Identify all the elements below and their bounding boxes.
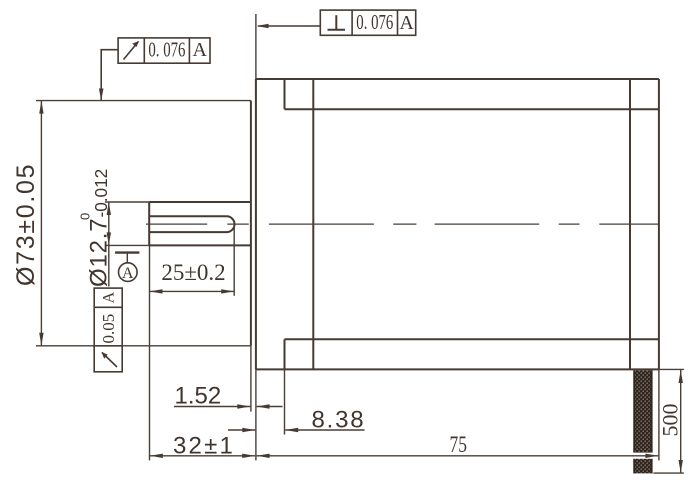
svg-text:Ø73±0.05: Ø73±0.05 xyxy=(12,163,40,286)
svg-text:1.52: 1.52 xyxy=(175,383,222,410)
svg-text:A: A xyxy=(122,265,134,282)
svg-text:A: A xyxy=(399,12,414,34)
svg-text:-0.012: -0.012 xyxy=(91,169,111,218)
svg-text:0. 076: 0. 076 xyxy=(148,38,185,62)
svg-text:A: A xyxy=(192,39,207,61)
svg-text:A: A xyxy=(101,291,118,303)
svg-text:500: 500 xyxy=(658,404,683,437)
svg-text:32±1: 32±1 xyxy=(173,433,235,460)
svg-text:0. 076: 0. 076 xyxy=(356,10,393,34)
svg-text:25±0.2: 25±0.2 xyxy=(161,260,225,285)
svg-text:0.05: 0.05 xyxy=(99,314,118,344)
svg-text:75: 75 xyxy=(450,432,468,457)
svg-text:Ø12.7: Ø12.7 xyxy=(86,218,113,287)
svg-text:8.38: 8.38 xyxy=(312,407,366,434)
